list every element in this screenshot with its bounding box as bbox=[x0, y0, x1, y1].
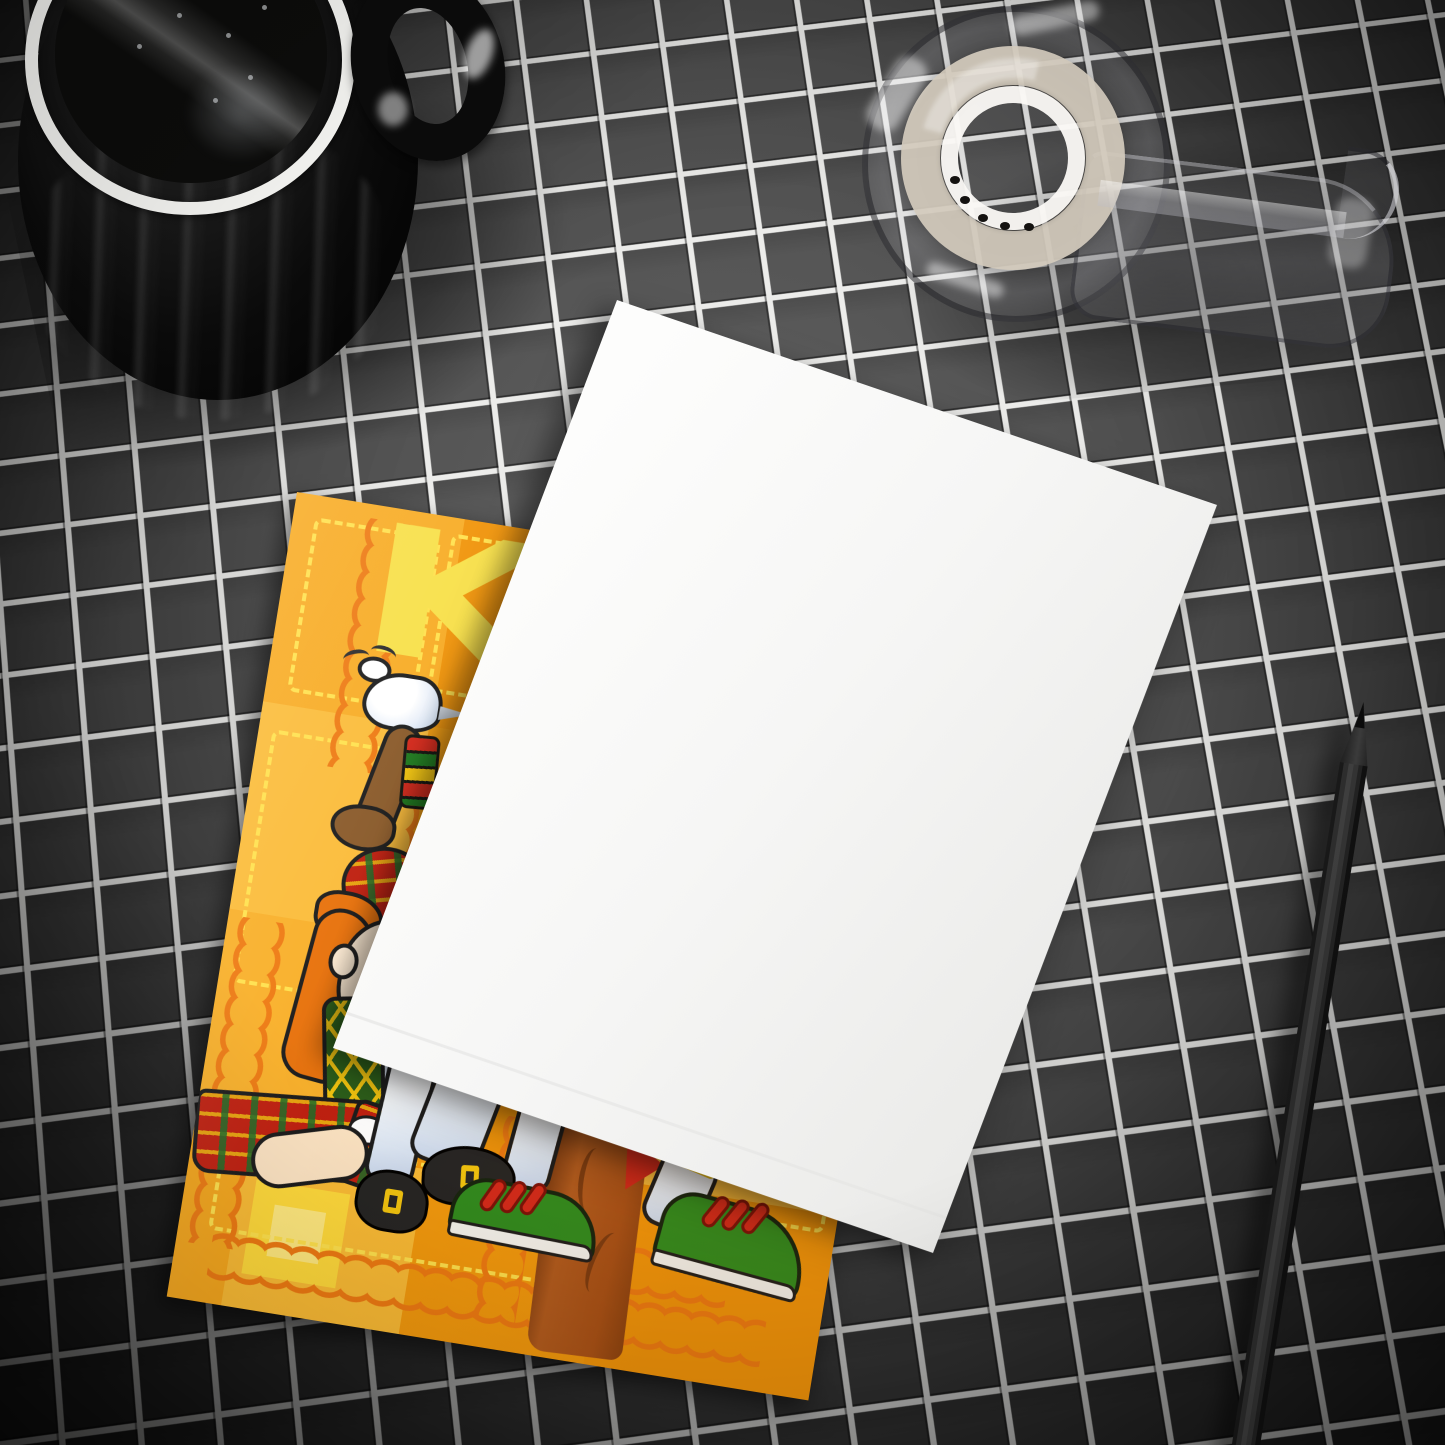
tape-core-hole bbox=[1024, 223, 1034, 231]
tape-core bbox=[941, 86, 1085, 230]
coffee-surface bbox=[55, 0, 327, 183]
tape-core-hole bbox=[1000, 222, 1010, 230]
handle-highlight bbox=[378, 92, 408, 126]
coffee-bubble bbox=[248, 75, 253, 80]
coffee-mug bbox=[0, 0, 560, 520]
coffee-glint bbox=[177, 59, 302, 167]
desk-scene: K bbox=[0, 0, 1445, 1445]
coffee-bubble bbox=[262, 5, 267, 10]
pencil-lead bbox=[1355, 701, 1369, 728]
coffee-bubble bbox=[213, 98, 218, 103]
tape-core-hole bbox=[950, 176, 960, 184]
tape-core-hole bbox=[960, 196, 970, 204]
tape-core-hole bbox=[978, 214, 988, 222]
coffee-bubble bbox=[137, 44, 142, 49]
